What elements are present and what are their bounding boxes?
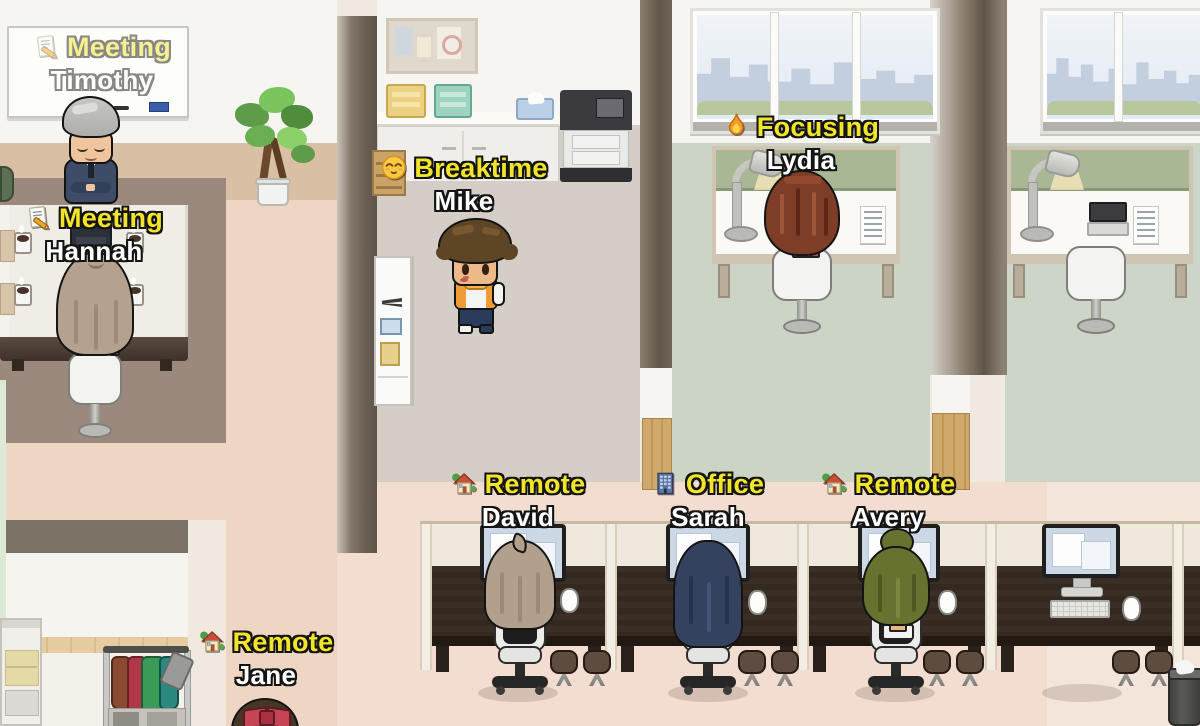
- status-label-lydia: Focusing Lydia: [723, 110, 879, 176]
- whiteboard-eraser: [149, 102, 169, 112]
- stool: [771, 650, 799, 690]
- lydia-hair: [764, 170, 840, 256]
- character-name: Jane: [236, 660, 296, 690]
- trash-can: [1168, 668, 1200, 726]
- coffee-mug: [14, 284, 32, 306]
- window: [1040, 8, 1200, 134]
- wall-divider-left: [337, 16, 377, 553]
- stool: [956, 650, 984, 690]
- lounge-wall-band: [0, 520, 188, 553]
- office-building-icon: [652, 470, 679, 497]
- monitor: [1042, 524, 1120, 578]
- status-label-timothy: Meeting Timothy: [33, 30, 171, 96]
- memo-icon: [33, 33, 60, 60]
- mouse: [748, 590, 767, 615]
- tissue-box: [516, 98, 554, 120]
- cubicle-divider: [985, 524, 997, 670]
- mike-hair: [438, 218, 512, 264]
- magnet-notes: [380, 342, 400, 366]
- bulletin-board: [386, 18, 478, 74]
- memo-icon: [25, 204, 52, 231]
- fire-icon: [723, 113, 750, 140]
- file-tray-teal: [434, 84, 472, 118]
- character-mike[interactable]: [430, 218, 518, 340]
- david-hair: [484, 540, 556, 630]
- character-name: Timothy: [51, 65, 154, 95]
- hannah-hair: [56, 252, 134, 356]
- character-name: David: [482, 502, 554, 532]
- character-lydia[interactable]: [758, 170, 846, 338]
- wall-divider-mid: [640, 0, 672, 368]
- potted-plant: [233, 85, 313, 207]
- status-text: Remote: [485, 469, 586, 499]
- character-sarah[interactable]: [670, 536, 746, 706]
- wall-divider-right: [930, 0, 1007, 375]
- coat-rack: [103, 646, 189, 726]
- stool: [583, 650, 611, 690]
- empty-chair: [1066, 246, 1126, 334]
- status-label-hannah: Meeting Hannah: [25, 201, 163, 267]
- mike-arm: [492, 282, 505, 306]
- character-jane[interactable]: [231, 698, 299, 726]
- character-name: Hannah: [45, 236, 142, 266]
- status-label-mike: Breaktime Mike: [380, 151, 547, 217]
- character-hannah[interactable]: [52, 248, 138, 434]
- desk-lamp: [1020, 152, 1090, 244]
- relieved-face-icon: [380, 154, 407, 181]
- lydia-chair: [772, 248, 832, 334]
- mini-fridge: [374, 256, 412, 406]
- status-text: Breaktime: [414, 153, 547, 183]
- sarah-hair: [673, 540, 743, 648]
- house-with-garden-icon: [821, 470, 848, 497]
- wall-divider-mid-base: [640, 368, 672, 420]
- mouse: [1122, 596, 1141, 621]
- stool: [1112, 650, 1140, 690]
- magnet-scissors: [382, 298, 402, 307]
- character-avery[interactable]: [858, 534, 934, 706]
- status-text: Meeting: [67, 32, 171, 62]
- status-text: Office: [686, 469, 764, 499]
- character-name: Mike: [434, 186, 493, 216]
- status-label-sarah: Office Sarah: [652, 467, 764, 533]
- gray-hair: [62, 96, 120, 138]
- laptop-keyboard: [1087, 222, 1129, 236]
- hannah-chair: [68, 352, 122, 438]
- status-label-jane: Remote Jane: [199, 625, 334, 691]
- file-tray-yellow: [386, 84, 426, 118]
- printer: [560, 90, 632, 182]
- cubicle-divider: [420, 524, 432, 670]
- mike-shoe: [458, 324, 473, 334]
- keyboard: [1050, 600, 1110, 618]
- house-with-garden-icon: [199, 628, 226, 655]
- desk-unit: [1184, 524, 1200, 672]
- virtual-office-map: Meeting Timothy Meeting Hannah Breaktime…: [0, 0, 1200, 726]
- desk-note: [1133, 206, 1159, 244]
- desk-note: [860, 206, 886, 244]
- mouse: [938, 590, 957, 615]
- house-with-garden-icon: [451, 470, 478, 497]
- corridor-floor-lower: [0, 443, 337, 520]
- character-david[interactable]: [482, 536, 558, 706]
- storage-cabinet: [0, 618, 42, 726]
- cubicle-divider: [605, 524, 617, 670]
- character-timothy[interactable]: [56, 96, 126, 208]
- suit-body: [64, 158, 118, 204]
- status-label-david: Remote David: [451, 467, 586, 533]
- status-text: Meeting: [59, 203, 163, 233]
- laptop: [1089, 202, 1127, 222]
- mike-shoe: [479, 324, 494, 334]
- table-paper: [0, 230, 15, 262]
- character-name: Lydia: [767, 145, 835, 175]
- side-chair: [0, 166, 14, 202]
- magnet-calendar: [380, 318, 402, 335]
- status-text: Focusing: [757, 112, 879, 142]
- avery-hair: [862, 546, 930, 626]
- character-name: Avery: [852, 502, 925, 532]
- status-label-avery: Remote Avery: [821, 467, 956, 533]
- cubicle-divider: [797, 524, 809, 670]
- table-paper: [0, 283, 15, 315]
- mouse: [560, 588, 579, 613]
- monitor-base: [1061, 587, 1103, 597]
- character-name: Sarah: [671, 502, 745, 532]
- cubicle-divider: [1172, 524, 1184, 670]
- status-text: Remote: [233, 627, 334, 657]
- status-text: Remote: [855, 469, 956, 499]
- wall-divider-right-base: [932, 375, 970, 415]
